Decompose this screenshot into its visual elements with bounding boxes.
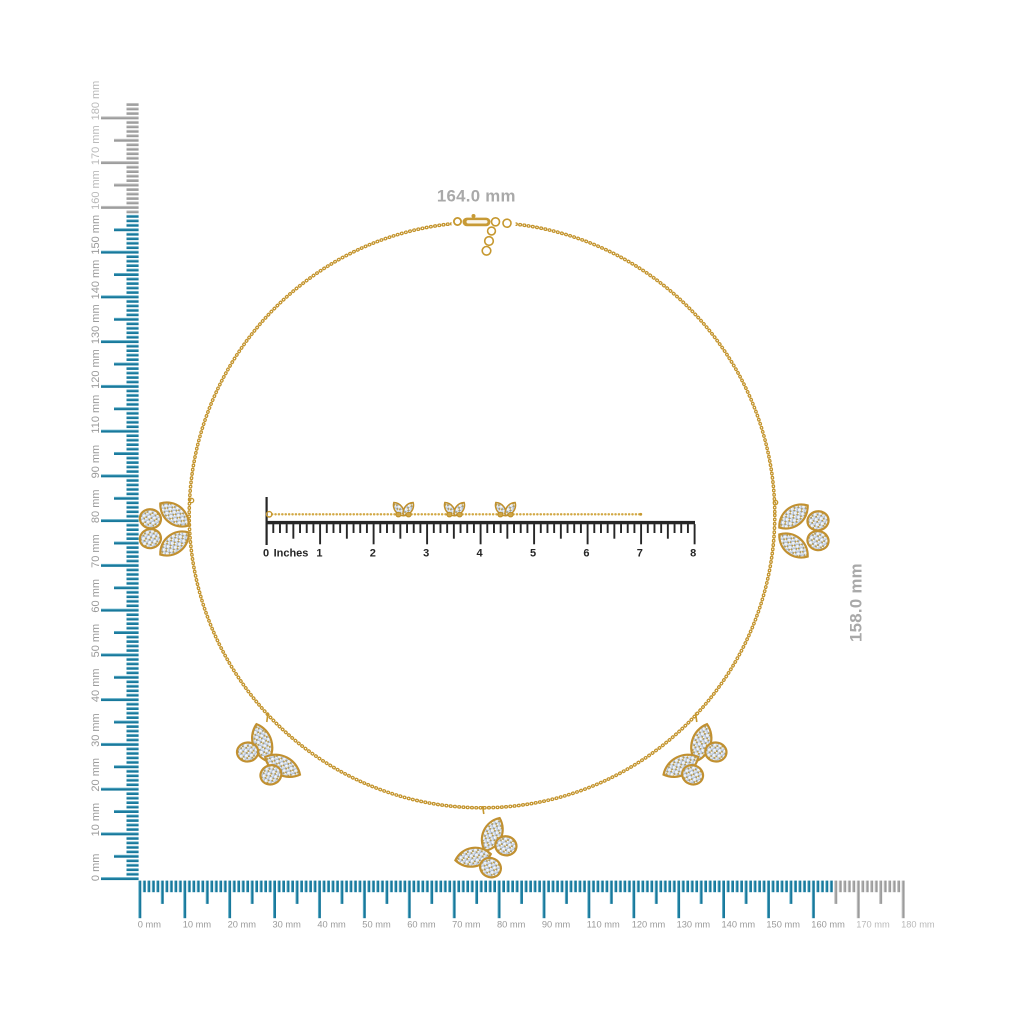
svg-text:7: 7 [637, 548, 643, 560]
svg-text:120 mm: 120 mm [90, 349, 102, 389]
svg-text:130 mm: 130 mm [90, 304, 102, 344]
svg-text:60 mm: 60 mm [407, 919, 436, 929]
svg-text:90 mm: 90 mm [90, 445, 102, 479]
svg-text:40 mm: 40 mm [317, 919, 346, 929]
svg-text:160 mm: 160 mm [90, 170, 102, 210]
svg-text:180 mm: 180 mm [901, 919, 935, 929]
svg-text:140 mm: 140 mm [722, 919, 756, 929]
svg-text:164.0 mm: 164.0 mm [437, 187, 516, 206]
svg-text:2: 2 [370, 548, 376, 560]
svg-text:170 mm: 170 mm [856, 919, 890, 929]
svg-text:70 mm: 70 mm [90, 534, 102, 568]
svg-text:0: 0 [263, 548, 269, 560]
svg-text:20 mm: 20 mm [90, 758, 102, 792]
svg-text:120 mm: 120 mm [632, 919, 666, 929]
svg-text:80 mm: 80 mm [497, 919, 526, 929]
svg-text:30 mm: 30 mm [273, 919, 302, 929]
svg-text:158.0 mm: 158.0 mm [847, 563, 866, 642]
svg-text:1: 1 [316, 548, 322, 560]
svg-text:8: 8 [690, 548, 696, 560]
svg-text:20 mm: 20 mm [228, 919, 257, 929]
svg-text:150 mm: 150 mm [90, 215, 102, 255]
svg-text:180 mm: 180 mm [90, 81, 102, 121]
svg-text:150 mm: 150 mm [766, 919, 800, 929]
svg-text:5: 5 [530, 548, 536, 560]
svg-text:60 mm: 60 mm [90, 579, 102, 613]
svg-text:10 mm: 10 mm [90, 803, 102, 837]
svg-text:70 mm: 70 mm [452, 919, 481, 929]
svg-text:50 mm: 50 mm [362, 919, 391, 929]
svg-text:110 mm: 110 mm [587, 919, 620, 929]
svg-text:0 mm: 0 mm [138, 919, 161, 929]
svg-text:170 mm: 170 mm [90, 125, 102, 165]
svg-text:4: 4 [477, 548, 484, 560]
svg-text:130 mm: 130 mm [677, 919, 711, 929]
svg-text:30 mm: 30 mm [90, 713, 102, 747]
svg-text:50 mm: 50 mm [90, 624, 102, 658]
svg-text:0 mm: 0 mm [90, 854, 102, 882]
svg-text:10 mm: 10 mm [183, 919, 212, 929]
svg-text:160 mm: 160 mm [811, 919, 845, 929]
svg-text:80 mm: 80 mm [90, 489, 102, 523]
svg-text:140 mm: 140 mm [90, 260, 102, 300]
svg-text:90 mm: 90 mm [542, 919, 571, 929]
svg-text:40 mm: 40 mm [90, 668, 102, 702]
svg-text:3: 3 [423, 548, 429, 560]
svg-text:110 mm: 110 mm [90, 395, 102, 434]
svg-text:6: 6 [583, 548, 589, 560]
svg-text:Inches: Inches [274, 548, 309, 560]
